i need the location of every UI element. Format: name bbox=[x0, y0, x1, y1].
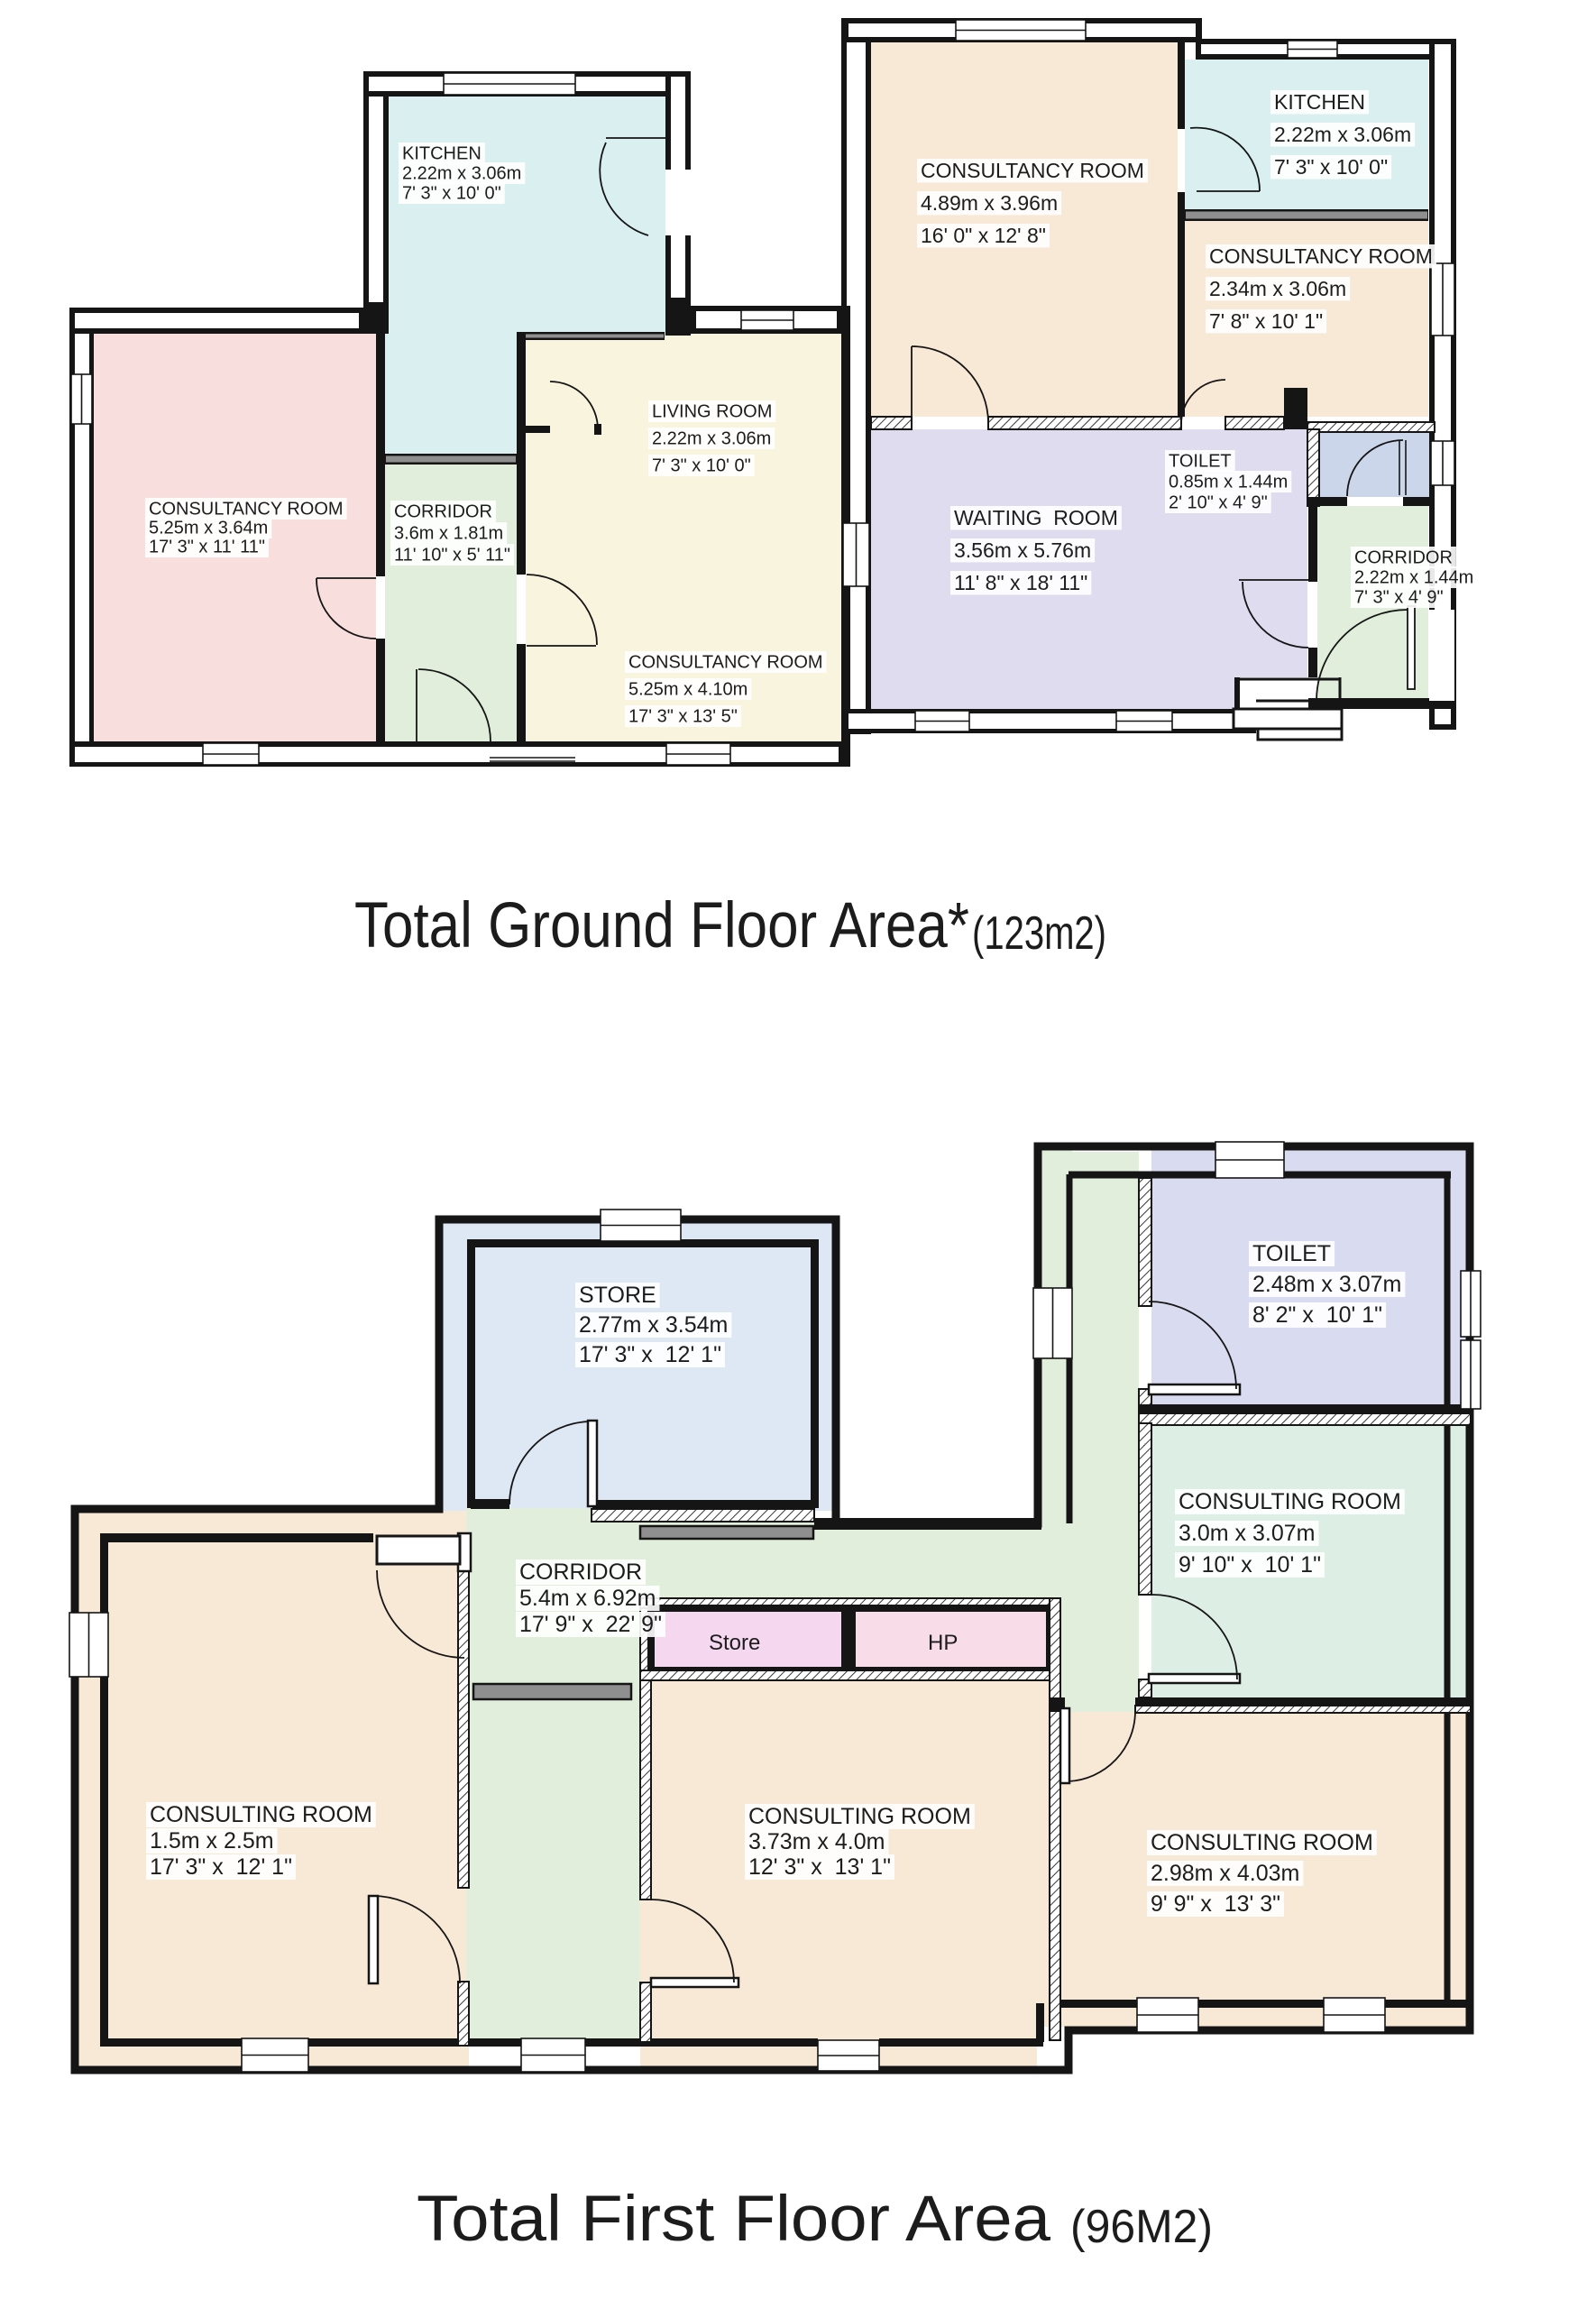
svg-text:KITCHEN: KITCHEN bbox=[402, 144, 482, 164]
svg-text:9' 10" x 10' 1": 9' 10" x 10' 1" bbox=[1179, 1552, 1321, 1578]
svg-text:9' 9" x 13' 3": 9' 9" x 13' 3" bbox=[1151, 1891, 1280, 1917]
svg-text:CONSULTANCY ROOM: CONSULTANCY ROOM bbox=[921, 159, 1144, 182]
svg-text:11' 8" x 18' 11": 11' 8" x 18' 11" bbox=[954, 571, 1087, 594]
svg-text:4.89m x 3.96m: 4.89m x 3.96m bbox=[921, 191, 1058, 215]
svg-text:3.56m x 5.76m: 3.56m x 5.76m bbox=[954, 538, 1091, 562]
svg-text:CONSULTING ROOM: CONSULTING ROOM bbox=[150, 1802, 372, 1827]
svg-text:12' 3" x 13' 1": 12' 3" x 13' 1" bbox=[748, 1854, 891, 1880]
svg-text:3.0m x 3.07m: 3.0m x 3.07m bbox=[1179, 1521, 1315, 1546]
svg-text:(96M2): (96M2) bbox=[1070, 2201, 1213, 2253]
svg-text:2.22m x 1.44m: 2.22m x 1.44m bbox=[1354, 568, 1473, 588]
svg-text:CONSULTANCY ROOM: CONSULTANCY ROOM bbox=[628, 653, 823, 673]
svg-text:17' 3" x 11' 11": 17' 3" x 11' 11" bbox=[149, 538, 265, 557]
svg-text:2.34m x 3.06m: 2.34m x 3.06m bbox=[1209, 277, 1346, 300]
svg-text:Total Ground Floor Area*: Total Ground Floor Area* bbox=[354, 890, 969, 961]
svg-text:TOILET: TOILET bbox=[1252, 1241, 1331, 1266]
svg-text:TOILET: TOILET bbox=[1169, 452, 1232, 472]
svg-text:2.48m x 3.07m: 2.48m x 3.07m bbox=[1252, 1272, 1401, 1297]
svg-text:2' 10" x 4' 9": 2' 10" x 4' 9" bbox=[1169, 493, 1268, 513]
svg-text:7' 8" x 10' 1": 7' 8" x 10' 1" bbox=[1209, 309, 1323, 333]
svg-text:CORRIDOR: CORRIDOR bbox=[394, 502, 492, 522]
svg-text:3.73m x 4.0m: 3.73m x 4.0m bbox=[748, 1829, 885, 1854]
svg-text:CONSULTANCY ROOM: CONSULTANCY ROOM bbox=[149, 500, 344, 520]
svg-text:CONSULTING ROOM: CONSULTING ROOM bbox=[1179, 1489, 1401, 1514]
svg-text:2.98m x 4.03m: 2.98m x 4.03m bbox=[1151, 1861, 1299, 1886]
svg-text:7' 3" x 10' 0": 7' 3" x 10' 0" bbox=[652, 456, 751, 476]
svg-text:8' 2" x 10' 1": 8' 2" x 10' 1" bbox=[1252, 1302, 1382, 1328]
svg-text:11' 10" x 5' 11": 11' 10" x 5' 11" bbox=[394, 546, 510, 566]
svg-text:1.5m x 2.5m: 1.5m x 2.5m bbox=[150, 1828, 274, 1854]
svg-text:Store: Store bbox=[709, 1631, 760, 1655]
svg-text:17' 3" x 12' 1": 17' 3" x 12' 1" bbox=[579, 1342, 721, 1367]
svg-text:7' 3" x 4' 9": 7' 3" x 4' 9" bbox=[1354, 588, 1444, 608]
svg-text:KITCHEN: KITCHEN bbox=[1274, 90, 1365, 114]
svg-text:2.77m x 3.54m: 2.77m x 3.54m bbox=[579, 1312, 728, 1338]
svg-text:17' 3" x 12' 1": 17' 3" x 12' 1" bbox=[150, 1854, 292, 1880]
svg-text:5.4m x 6.92m: 5.4m x 6.92m bbox=[519, 1586, 656, 1611]
svg-text:5.25m x 3.64m: 5.25m x 3.64m bbox=[149, 519, 268, 538]
svg-text:CONSULTANCY ROOM: CONSULTANCY ROOM bbox=[1209, 244, 1433, 268]
svg-text:17' 3" x 13' 5": 17' 3" x 13' 5" bbox=[628, 707, 738, 727]
svg-text:CONSULTING ROOM: CONSULTING ROOM bbox=[748, 1804, 971, 1829]
svg-text:7' 3" x 10' 0": 7' 3" x 10' 0" bbox=[1274, 155, 1388, 179]
svg-text:CORRIDOR: CORRIDOR bbox=[1354, 548, 1453, 568]
svg-text:2.22m x 3.06m: 2.22m x 3.06m bbox=[652, 429, 771, 449]
svg-text:16' 0" x 12' 8": 16' 0" x 12' 8" bbox=[921, 224, 1046, 247]
svg-text:STORE: STORE bbox=[579, 1283, 656, 1308]
svg-text:WAITING ROOM: WAITING ROOM bbox=[954, 506, 1118, 529]
svg-text:LIVING ROOM: LIVING ROOM bbox=[652, 402, 772, 422]
svg-text:7' 3" x 10' 0": 7' 3" x 10' 0" bbox=[402, 184, 501, 204]
svg-text:(123m2): (123m2) bbox=[972, 907, 1106, 960]
svg-text:2.22m x 3.06m: 2.22m x 3.06m bbox=[1274, 123, 1411, 146]
svg-text:17' 9" x 22' 9": 17' 9" x 22' 9" bbox=[519, 1612, 662, 1637]
svg-text:3.6m x 1.81m: 3.6m x 1.81m bbox=[394, 524, 503, 544]
svg-text:Total First Floor Area: Total First Floor Area bbox=[417, 2184, 1051, 2255]
svg-text:CORRIDOR: CORRIDOR bbox=[519, 1559, 642, 1585]
svg-text:0.85m x 1.44m: 0.85m x 1.44m bbox=[1169, 473, 1288, 492]
svg-text:2.22m x 3.06m: 2.22m x 3.06m bbox=[402, 164, 521, 184]
svg-text:HP: HP bbox=[928, 1631, 958, 1655]
svg-text:5.25m x 4.10m: 5.25m x 4.10m bbox=[628, 680, 748, 700]
svg-text:CONSULTING ROOM: CONSULTING ROOM bbox=[1151, 1830, 1373, 1855]
